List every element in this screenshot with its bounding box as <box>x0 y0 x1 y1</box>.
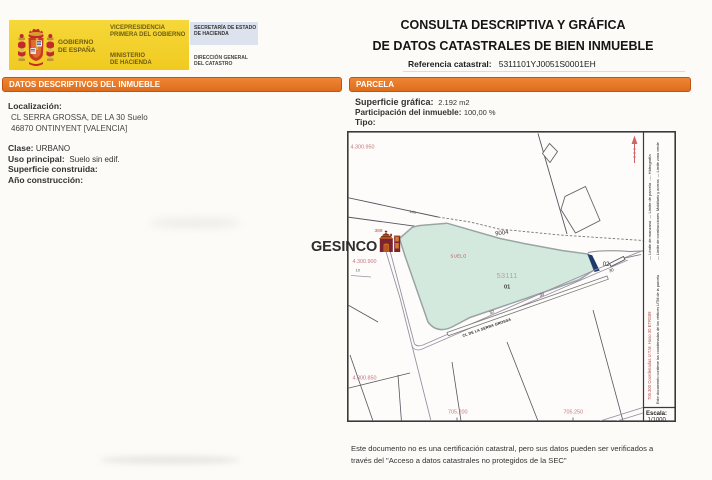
svg-text:10: 10 <box>356 268 361 273</box>
svg-text:— Límite de construcciones Mo: — Límite de construcciones Mobiliario y … <box>656 142 660 260</box>
svg-text:01: 01 <box>504 285 510 291</box>
svg-text:1/1000: 1/1000 <box>648 418 667 423</box>
svg-text:— Límite de manzana — Límite: — Límite de manzana — Límite de parcela … <box>647 154 652 260</box>
svg-text:Escala:: Escala: <box>646 411 667 417</box>
svg-text:4.300.850: 4.300.850 <box>353 376 377 382</box>
svg-text:4.300.900: 4.300.900 <box>353 259 377 265</box>
svg-text:SUELO: SUELO <box>451 254 468 259</box>
svg-text:4.300.950: 4.300.950 <box>351 145 375 151</box>
svg-text:705.250: 705.250 <box>564 410 584 416</box>
svg-text:705.200: 705.200 <box>448 410 468 416</box>
svg-text:53111: 53111 <box>497 271 518 280</box>
svg-text:Este documento contiene las co: Este documento contiene las coordenadas … <box>656 274 660 404</box>
svg-text:705.300 Coordenadas U.T.M. Hus: 705.300 Coordenadas U.T.M. Huso 30 ETRS8… <box>647 311 652 400</box>
svg-text:02: 02 <box>603 262 610 268</box>
